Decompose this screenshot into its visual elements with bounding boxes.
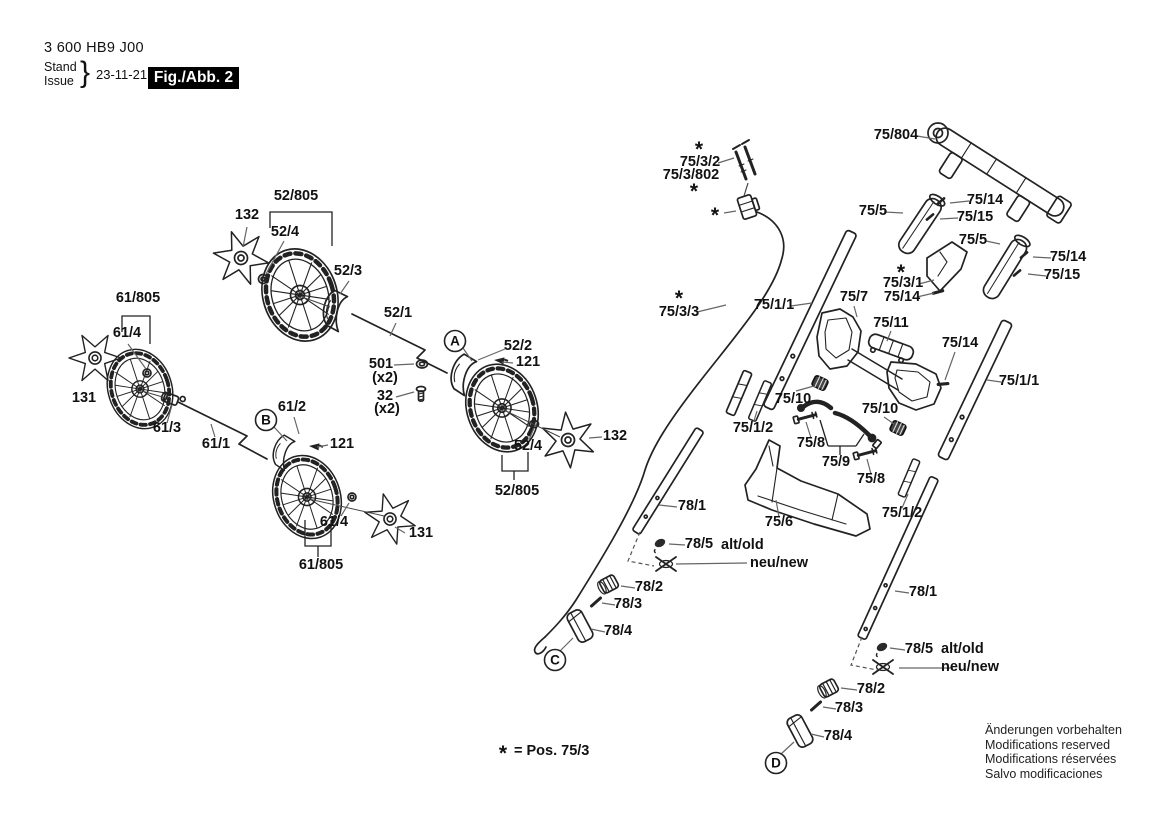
part-callout: 78/2 [635,579,663,595]
part-callout: 75/1/1 [999,373,1039,389]
lower-console [745,440,870,536]
part-callout: 52/4 [514,438,542,454]
part-callout: neu/new [750,555,809,571]
console-bar [866,333,915,366]
part-callout: 75/3/3 [659,304,699,320]
part-callout: 61/2 [278,399,306,415]
part-callout: 52/1 [384,305,412,321]
star-marker: * [711,204,720,227]
part-callout: 75/6 [765,514,793,530]
part-callout: 78/4 [604,623,632,639]
pin-75-14 [933,198,1027,388]
svg-text:D: D [771,756,781,771]
part-callout: 52/4 [271,224,299,240]
hub-cap-star [532,406,603,474]
part-callout: 75/1/1 [754,297,794,313]
handle-assembly [920,122,1072,242]
part-callout: 52/2 [504,338,532,354]
part-callout: 78/4 [824,728,852,744]
part-callout: 78/5 [685,536,713,552]
ref-letter-C: C [545,650,566,671]
part-callout: 75/14 [1050,249,1086,265]
svg-text:B: B [261,413,271,428]
part-callout: 78/2 [857,681,885,697]
part-callout: 75/10 [862,401,898,417]
cable-clip [737,193,761,220]
part-callout: 52/805 [495,483,539,499]
part-callout: (x2) [372,370,398,386]
part-callout: 78/3 [614,596,642,612]
part-callout: 75/7 [840,289,868,305]
svg-text:A: A [450,334,460,349]
part-callout: 75/804 [874,127,918,143]
part-callout: 75/1/2 [882,505,922,521]
wheel [250,239,349,351]
part-callout: 75/11 [873,315,909,331]
funnel-part [927,242,967,291]
part-callout: 61/1 [202,436,230,452]
ref-letter-A: A [445,331,466,352]
part-callout: 61/3 [153,420,181,436]
part-callout: 121 [330,436,354,452]
part-callout: 61/805 [299,557,343,573]
part-callout: alt/old [941,641,984,657]
part-callout: 52/805 [274,188,318,204]
part-callout: 75/1/2 [733,420,773,436]
part-callout: 75/14 [942,335,978,351]
screw-32 [417,387,426,402]
part-callout: neu/new [941,659,1000,675]
cable-bolts [733,140,755,179]
washer [143,275,539,502]
grip [980,233,1031,301]
star-marker: * [499,742,508,765]
part-callout: 75/14 [967,192,1003,208]
clip-link-line [744,183,748,196]
part-callout: 75/8 [797,435,825,451]
part-callout: 131 [409,525,433,541]
part-callout: 75/9 [822,454,850,470]
wheel [262,446,351,547]
part-callout: 75/14 [884,289,920,305]
cable-end-hook [535,637,546,654]
part-callout: 78/1 [678,498,706,514]
part-callout: 75/15 [957,209,993,225]
part-callout: 75/5 [859,203,887,219]
wheel-bracket [269,433,295,471]
ref-letter-B: B [256,410,277,431]
part-callout: 75/5 [959,232,987,248]
ref-letter-D: D [766,753,787,774]
part-callout: 132 [235,207,259,223]
part-callout: 78/5 [905,641,933,657]
part-callout: 61/805 [116,290,160,306]
part-callout: = Pos. 75/3 [514,743,589,759]
part-callout: 132 [603,428,627,444]
part-callout: 52/3 [334,263,362,279]
svg-text:C: C [550,653,560,668]
exploded-view-canvas: 52/80513252/452/352/1A52/2121501(x2)32(x… [0,0,1169,826]
label-brackets [122,212,864,557]
lower-tube [632,427,704,534]
star-marker: * [690,180,699,203]
part-callout: 61/4 [113,325,141,341]
part-callout: 75/8 [857,471,885,487]
part-callout: (x2) [374,401,400,417]
part-callout: 61/4 [320,514,348,530]
part-callout: alt/old [721,537,764,553]
part-callout: 78/3 [835,700,863,716]
part-callout: 78/1 [909,584,937,600]
lower-tube [857,476,938,640]
part-callout: 131 [72,390,96,406]
part-callout: 75/10 [775,391,811,407]
handle-tube [763,230,857,411]
parts-diagram-page: 3 600 HB9 J00 Stand Issue } 23-11-21 Fig… [0,0,1169,826]
part-callout: 121 [516,354,540,370]
leader-lines [128,136,1051,754]
part-callout: 75/15 [1044,267,1080,283]
